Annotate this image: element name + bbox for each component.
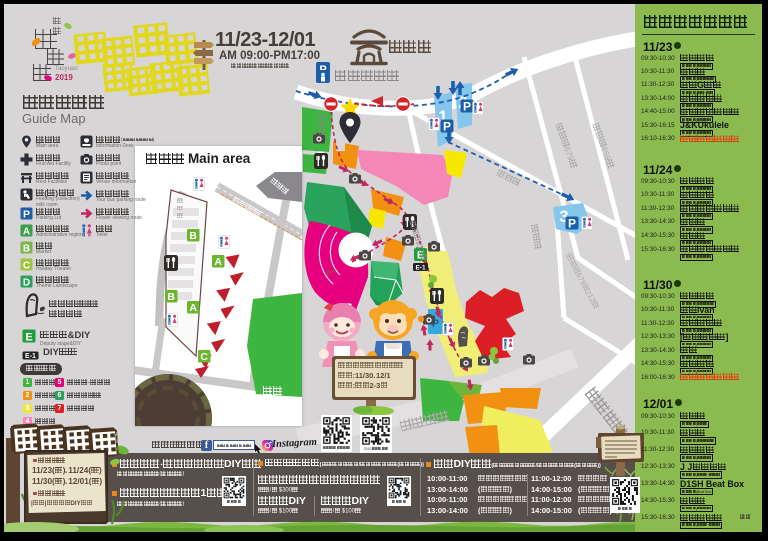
svg-text:A: A [214, 256, 222, 268]
svg-text:D: D [23, 277, 30, 288]
svg-text:A: A [189, 302, 197, 314]
svg-text:B: B [167, 291, 175, 303]
svg-text:C: C [23, 260, 30, 271]
svg-text:E-1: E-1 [25, 353, 36, 360]
svg-text:E: E [25, 331, 32, 343]
svg-text:C: C [200, 351, 208, 363]
svg-text:B: B [23, 243, 30, 254]
svg-text:A: A [23, 226, 30, 237]
svg-text:P: P [23, 209, 30, 220]
